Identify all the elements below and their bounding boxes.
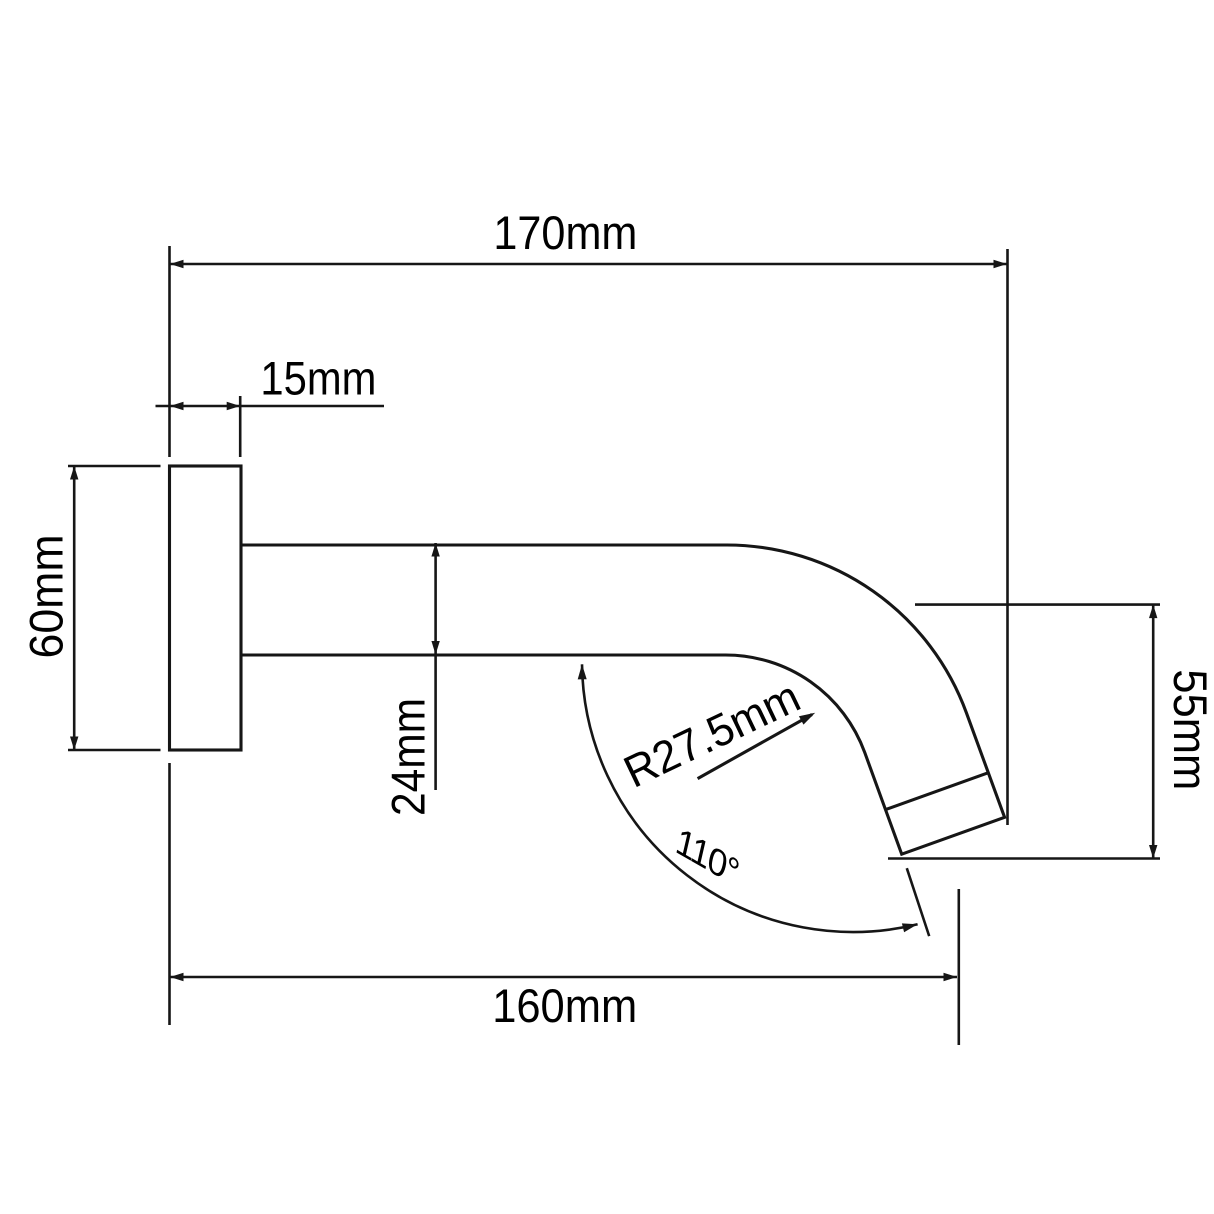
svg-text:60mm: 60mm <box>20 535 73 659</box>
svg-text:55mm: 55mm <box>1164 669 1214 790</box>
svg-text:24mm: 24mm <box>382 698 435 816</box>
svg-text:15mm: 15mm <box>260 352 376 405</box>
svg-text:170mm: 170mm <box>493 206 637 259</box>
svg-text:160mm: 160mm <box>492 979 637 1032</box>
